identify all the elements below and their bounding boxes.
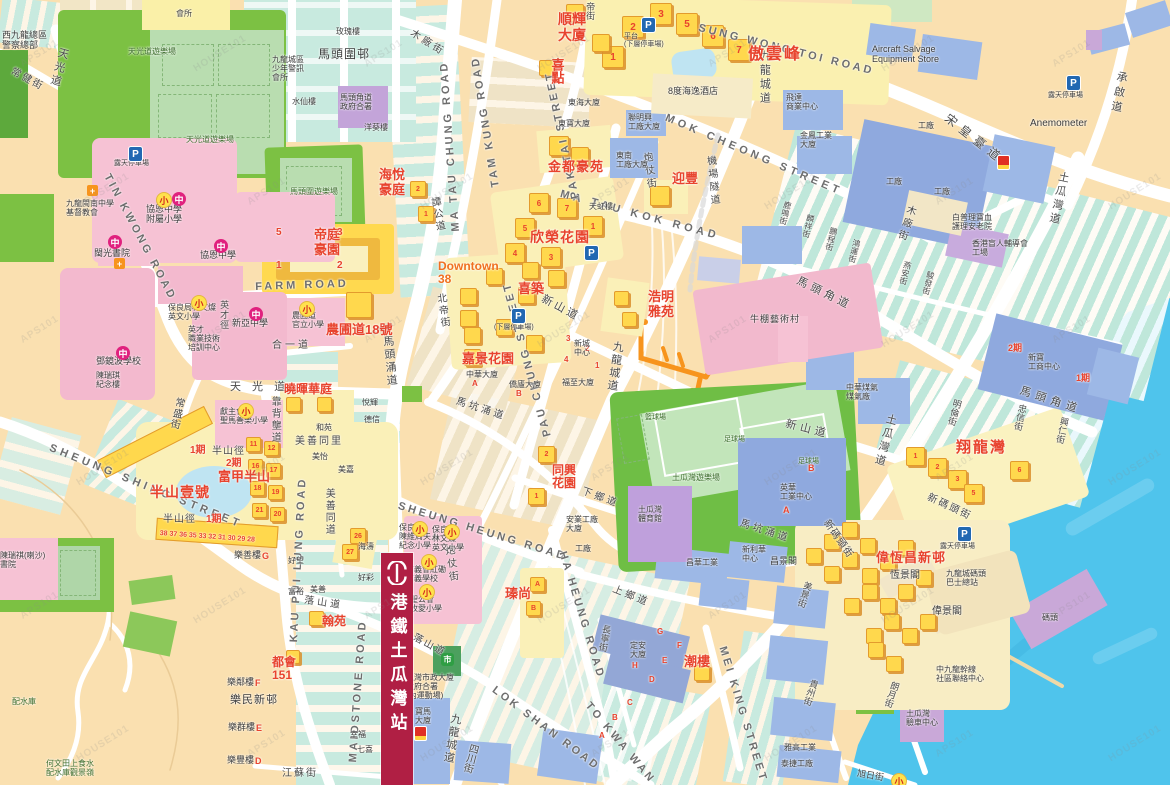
- watermark: APS101: [933, 451, 976, 483]
- watermark: HOUSE101: [192, 33, 249, 74]
- watermark: APS101: [706, 313, 749, 345]
- watermark: HOUSE101: [763, 447, 820, 488]
- watermark: HOUSE101: [763, 723, 820, 764]
- watermark: APS101: [18, 37, 61, 69]
- watermark: HOUSE101: [1107, 723, 1164, 764]
- watermark: HOUSE101: [75, 171, 132, 212]
- watermark: HOUSE101: [536, 309, 593, 350]
- watermark: HOUSE101: [880, 585, 937, 626]
- watermark: HOUSE101: [536, 33, 593, 74]
- watermark: HOUSE101: [75, 447, 132, 488]
- watermark: HOUSE101: [419, 171, 476, 212]
- watermark: APS101: [245, 175, 288, 207]
- watermark: HOUSE101: [536, 585, 593, 626]
- map-canvas[interactable]: 123567675143211112161718192120262721AB12…: [0, 0, 1170, 785]
- watermark: APS101: [18, 313, 61, 345]
- watermark: APS101: [706, 589, 749, 621]
- watermark: APS101: [362, 313, 405, 345]
- watermark: APS101: [589, 175, 632, 207]
- watermark: APS101: [706, 37, 749, 69]
- watermark: HOUSE101: [880, 309, 937, 350]
- watermark: APS101: [1050, 313, 1093, 345]
- watermark: APS101: [589, 727, 632, 759]
- watermark: APS101: [18, 589, 61, 621]
- watermark: HOUSE101: [1107, 171, 1164, 212]
- watermark: APS101: [1050, 37, 1093, 69]
- watermark: APS101: [245, 727, 288, 759]
- watermark: HOUSE101: [1107, 447, 1164, 488]
- watermark: HOUSE101: [192, 585, 249, 626]
- watermark: HOUSE101: [419, 723, 476, 764]
- watermark: HOUSE101: [192, 309, 249, 350]
- watermark: APS101: [1050, 589, 1093, 621]
- watermark: APS101: [362, 589, 405, 621]
- watermark: HOUSE101: [880, 33, 937, 74]
- watermark: APS101: [933, 727, 976, 759]
- watermark: APS101: [245, 451, 288, 483]
- watermark: HOUSE101: [763, 171, 820, 212]
- watermark: APS101: [589, 451, 632, 483]
- watermark: HOUSE101: [75, 723, 132, 764]
- watermark: HOUSE101: [419, 447, 476, 488]
- watermark-layer: APS101HOUSE101APS101HOUSE101APS101HOUSE1…: [0, 0, 1170, 785]
- watermark: APS101: [933, 175, 976, 207]
- watermark: APS101: [362, 37, 405, 69]
